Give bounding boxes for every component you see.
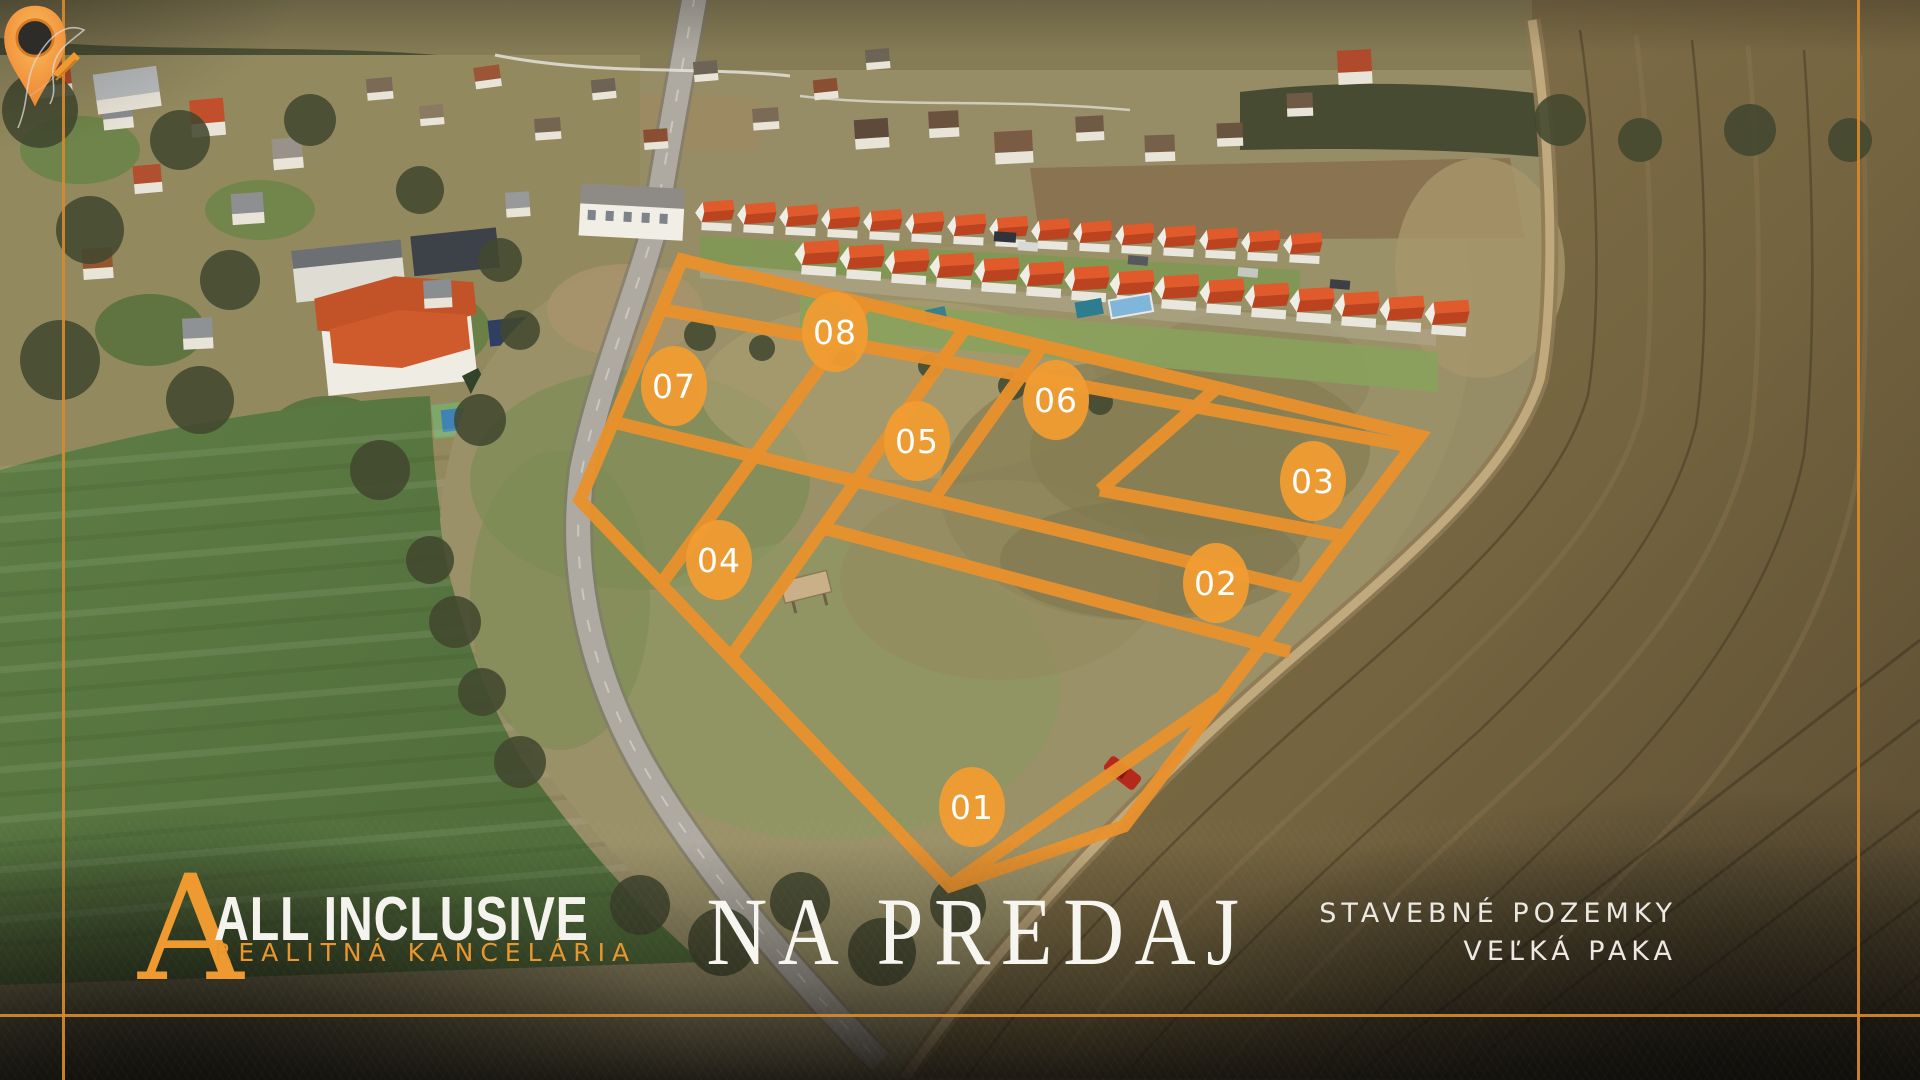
plot-label-07: 07 bbox=[641, 346, 707, 426]
brand-subtitle: REALITNÁ KANCELÁRIA bbox=[214, 938, 636, 967]
svg-text:04: 04 bbox=[697, 541, 741, 580]
svg-text:01: 01 bbox=[950, 788, 994, 827]
plot-label-03: 03 bbox=[1280, 441, 1346, 521]
promo-image: 0102030405060708 A ALL INCLUSIVE REALITN… bbox=[0, 0, 1920, 1080]
frame-line-left bbox=[62, 0, 65, 1080]
location-line1: STAVEBNÉ POZEMKY bbox=[1319, 898, 1677, 929]
plot-label-04: 04 bbox=[686, 520, 752, 600]
frame-line-right bbox=[1857, 0, 1860, 1080]
svg-text:05: 05 bbox=[895, 422, 939, 461]
svg-text:07: 07 bbox=[652, 367, 696, 406]
plot-label-05: 05 bbox=[884, 401, 950, 481]
svg-text:08: 08 bbox=[813, 313, 857, 352]
svg-text:02: 02 bbox=[1194, 564, 1238, 603]
plot-label-02: 02 bbox=[1183, 543, 1249, 623]
plot-label-01: 01 bbox=[939, 767, 1005, 847]
plot-label-06: 06 bbox=[1023, 360, 1089, 440]
svg-text:06: 06 bbox=[1034, 381, 1078, 420]
quill-icon bbox=[0, 0, 150, 140]
frame-line-bottom bbox=[0, 1014, 1920, 1017]
location-line2: VEĽKÁ PAKA bbox=[1463, 936, 1677, 967]
headline-title: NA PREDAJ bbox=[706, 874, 1249, 989]
plot-label-08: 08 bbox=[802, 292, 868, 372]
svg-text:03: 03 bbox=[1291, 462, 1335, 501]
